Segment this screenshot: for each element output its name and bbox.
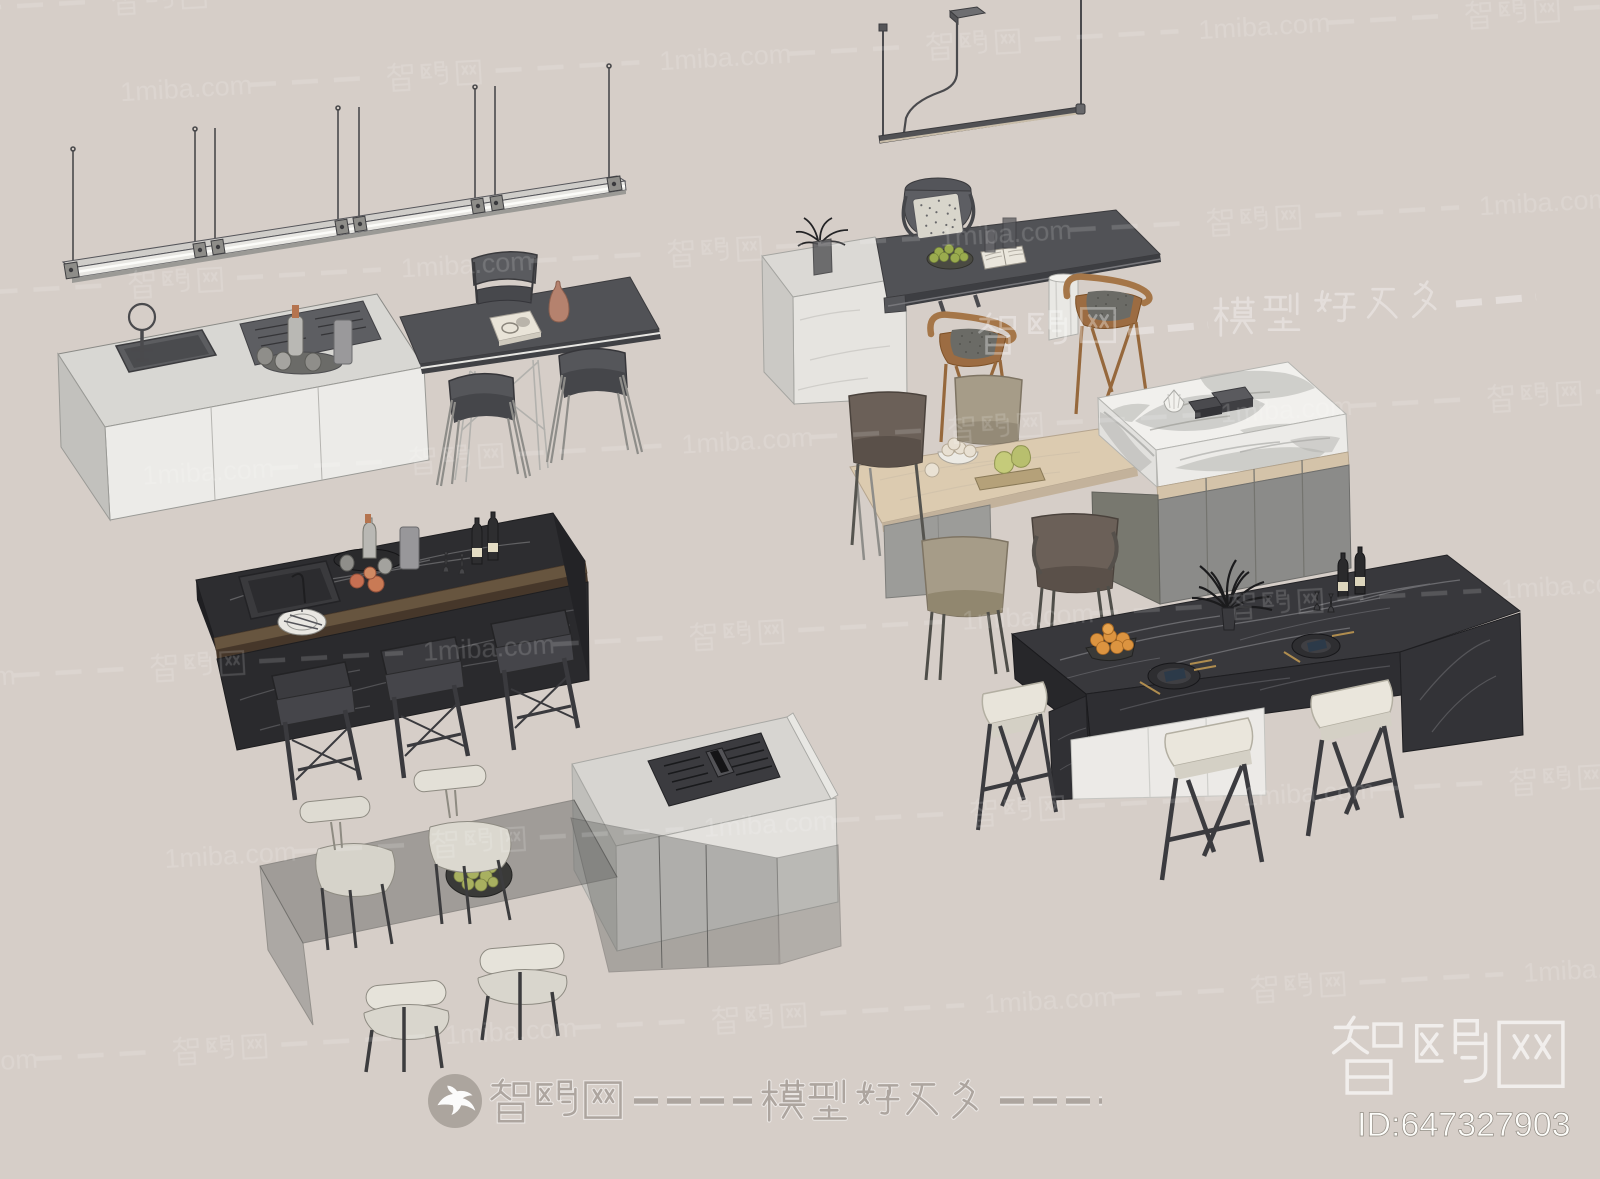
svg-text:ID:647327903: ID:647327903 (1357, 1106, 1571, 1144)
